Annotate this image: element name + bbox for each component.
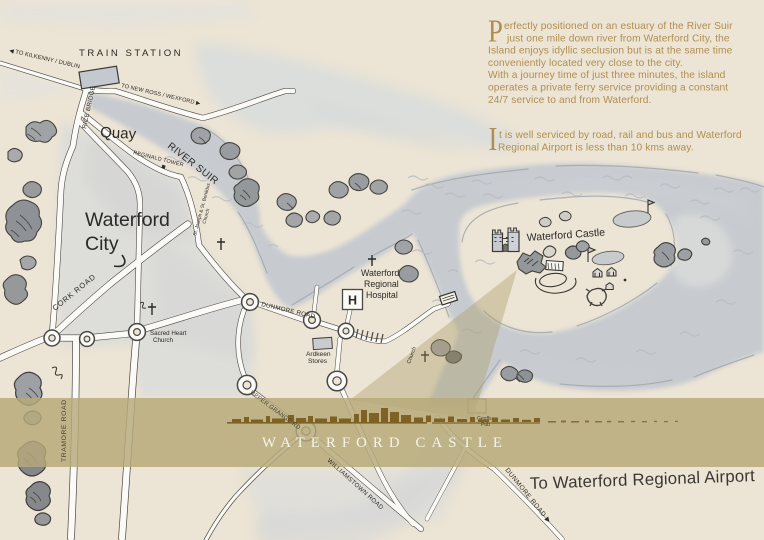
svg-text:H: H <box>348 294 357 308</box>
svg-text:Hospital: Hospital <box>366 290 398 300</box>
svg-text:Sacred Heart: Sacred Heart <box>150 330 187 337</box>
svg-text:Waterford: Waterford <box>361 268 399 278</box>
svg-text:WATERFORD CASTLE: WATERFORD CASTLE <box>262 435 508 451</box>
svg-text:I: I <box>489 120 498 158</box>
svg-text:Waterford: Waterford <box>85 209 170 231</box>
svg-text:TRAIN STATION: TRAIN STATION <box>79 48 183 59</box>
svg-text:Island enjoys idyllic seclusio: Island enjoys idyllic seclusion but is a… <box>488 46 733 57</box>
svg-text:P: P <box>488 14 503 48</box>
svg-text:Ardkeen: Ardkeen <box>306 351 331 358</box>
svg-text:City: City <box>85 233 119 255</box>
svg-text:With a journey time of just th: With a journey time of just three minute… <box>488 70 726 81</box>
svg-text:operates a private ferry servi: operates a private ferry service providi… <box>488 83 728 94</box>
svg-text:Church: Church <box>153 337 174 344</box>
svg-text:Quay: Quay <box>100 124 137 143</box>
svg-text:erfectly positioned on an estu: erfectly positioned on an estuary of the… <box>504 21 733 32</box>
svg-text:TRAMORE ROAD: TRAMORE ROAD <box>61 399 68 462</box>
svg-text:conveniently located very clos: conveniently located very close to the c… <box>488 58 683 69</box>
svg-text:24/7 service to and from Water: 24/7 service to and from Waterford. <box>488 95 652 106</box>
svg-text:Regional: Regional <box>364 279 399 289</box>
svg-text:Regional Airport is less than: Regional Airport is less than 10 kms awa… <box>498 142 694 153</box>
svg-text:just one mile down river from: just one mile down river from Waterford … <box>506 33 730 44</box>
svg-text:t is well serviced by road, ra: t is well serviced by road, rail and bus… <box>499 130 742 141</box>
svg-text:Pub: Pub <box>481 422 490 428</box>
svg-text:Stores: Stores <box>308 358 328 365</box>
